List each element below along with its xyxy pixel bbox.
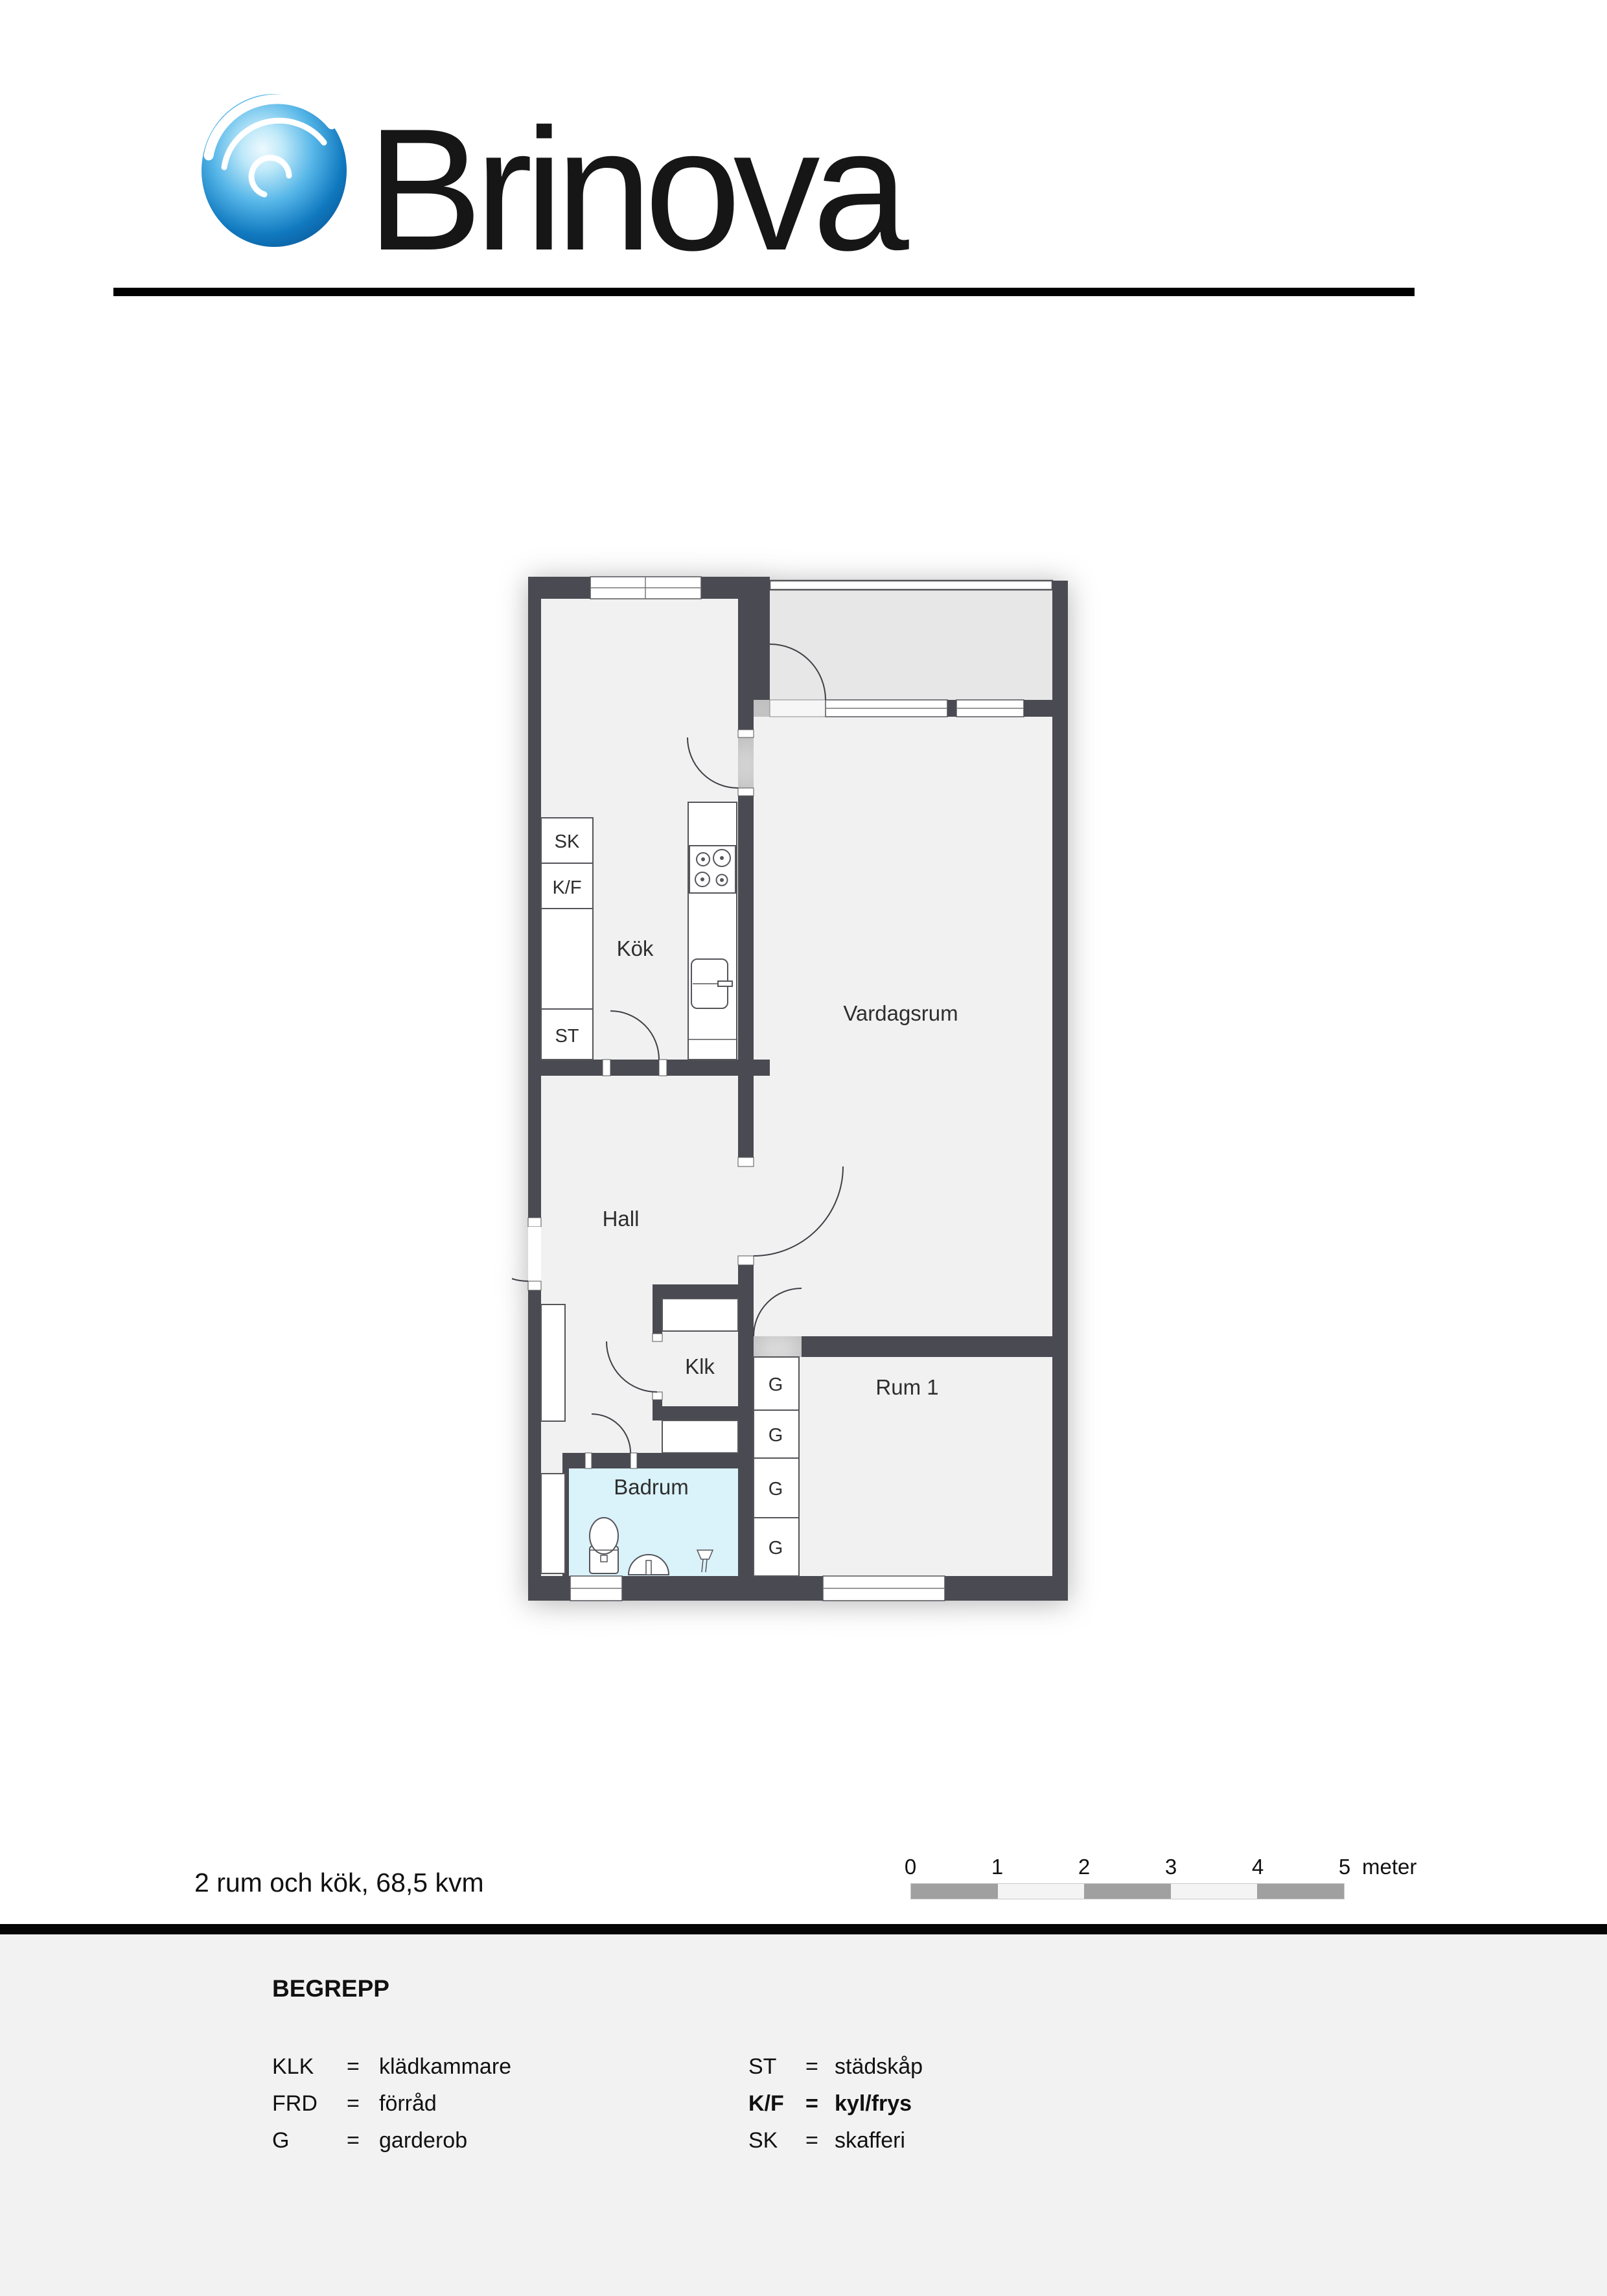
legend-def: förråd	[379, 2091, 437, 2116]
legend-row-klk: KLK=klädkammare	[272, 2054, 511, 2080]
legend-abbr: ST	[748, 2054, 805, 2080]
label-klk: Klk	[685, 1354, 715, 1378]
wall-klk-north	[653, 1284, 754, 1299]
faucet	[718, 981, 732, 986]
header-divider	[113, 288, 1415, 296]
balcony-door-opening	[770, 700, 826, 717]
wall-room1-north	[802, 1336, 1052, 1357]
legend-abbr: FRD	[272, 2091, 347, 2116]
label-sk: SK	[555, 831, 580, 852]
legend-eq: =	[805, 2091, 835, 2116]
scale-seg-1	[911, 1884, 998, 1899]
scale-seg-4	[1171, 1884, 1258, 1899]
label-room1: Rum 1	[875, 1375, 938, 1399]
label-living: Vardagsrum	[843, 1001, 958, 1025]
scale-seg-2	[998, 1884, 1085, 1899]
apartment-summary: 2 rum och kök, 68,5 kvm	[194, 1868, 484, 1898]
wall-outer-right	[1052, 581, 1068, 1601]
floorplan-document: Brinova	[0, 0, 1607, 2296]
kitchen-counter	[688, 802, 737, 1060]
wall-klk-south	[653, 1406, 754, 1421]
toilet-button	[601, 1555, 607, 1562]
scale-tick-5: 5	[1332, 1855, 1358, 1879]
legend-def: kyl/frys	[835, 2091, 912, 2116]
label-g2: G	[769, 1425, 783, 1446]
wall-outer-left	[528, 577, 541, 1601]
scale-tick-0: 0	[897, 1855, 923, 1879]
legend-def: skafferi	[835, 2128, 905, 2153]
label-st: ST	[555, 1026, 579, 1047]
legend-row-g: G=garderob	[272, 2128, 467, 2153]
scale-tick-4: 4	[1245, 1855, 1271, 1879]
balcony-window-mullion	[947, 700, 956, 717]
cabinet-blank	[541, 909, 593, 1009]
scale-seg-5	[1257, 1884, 1344, 1899]
legend-abbr: K/F	[748, 2091, 805, 2116]
legend-def: garderob	[379, 2128, 467, 2153]
wall-center-b	[738, 788, 754, 1060]
klk-shelf-bottom	[662, 1421, 738, 1453]
scale-unit: meter	[1362, 1855, 1416, 1879]
toilet-bowl	[590, 1518, 618, 1554]
legend-row-st: ST=städskåp	[748, 2054, 923, 2080]
legend-abbr: SK	[748, 2128, 805, 2153]
klk-shelf-top	[662, 1299, 738, 1331]
label-hall: Hall	[603, 1207, 640, 1231]
legend-eq: =	[805, 2128, 835, 2153]
floor-plan: Kök Vardagsrum Hall Klk Badrum Rum 1 SK …	[512, 570, 1076, 1614]
label-kf: K/F	[552, 877, 581, 898]
legend-eq: =	[347, 2091, 379, 2116]
legend-eq: =	[347, 2128, 379, 2153]
entrance-door-arc	[512, 1227, 528, 1281]
wall-center-c	[738, 1076, 754, 1166]
legend-heading: BEGREPP	[272, 1975, 389, 2002]
legend-eq: =	[347, 2054, 379, 2080]
scale-tick-1: 1	[984, 1855, 1010, 1879]
legend-row-sk: SK=skafferi	[748, 2128, 905, 2153]
label-bathroom: Badrum	[614, 1475, 689, 1499]
scale-tick-2: 2	[1071, 1855, 1097, 1879]
wall-balcony-left	[738, 599, 770, 700]
balcony-wall-block	[1024, 700, 1052, 717]
legend-def: klädkammare	[379, 2054, 511, 2079]
legend-row-frd: FRD=förråd	[272, 2091, 437, 2116]
legend-abbr: G	[272, 2128, 347, 2153]
scale-bar	[910, 1883, 1345, 1899]
label-g3: G	[769, 1479, 783, 1500]
hall-wardrobe	[541, 1305, 565, 1421]
balcony-rail	[770, 581, 1052, 590]
label-g1: G	[769, 1374, 783, 1395]
footer-divider-bar	[0, 1924, 1607, 1934]
legend-eq: =	[805, 2054, 835, 2080]
legend-def: städskåp	[835, 2054, 923, 2079]
legend-row-kf: K/F=kyl/frys	[748, 2091, 912, 2116]
legend-abbr: KLK	[272, 2054, 347, 2080]
balcony-floor	[770, 590, 1052, 700]
basin-tap	[646, 1560, 651, 1575]
scale-tick-3: 3	[1158, 1855, 1184, 1879]
label-g4: G	[769, 1538, 783, 1559]
hall-niche	[541, 1474, 565, 1573]
brinova-logo-icon	[198, 91, 354, 250]
brand-name: Brinova	[367, 102, 901, 276]
wall-kitchen-south	[541, 1060, 770, 1076]
label-kitchen: Kök	[617, 936, 654, 960]
scale-seg-3	[1084, 1884, 1171, 1899]
